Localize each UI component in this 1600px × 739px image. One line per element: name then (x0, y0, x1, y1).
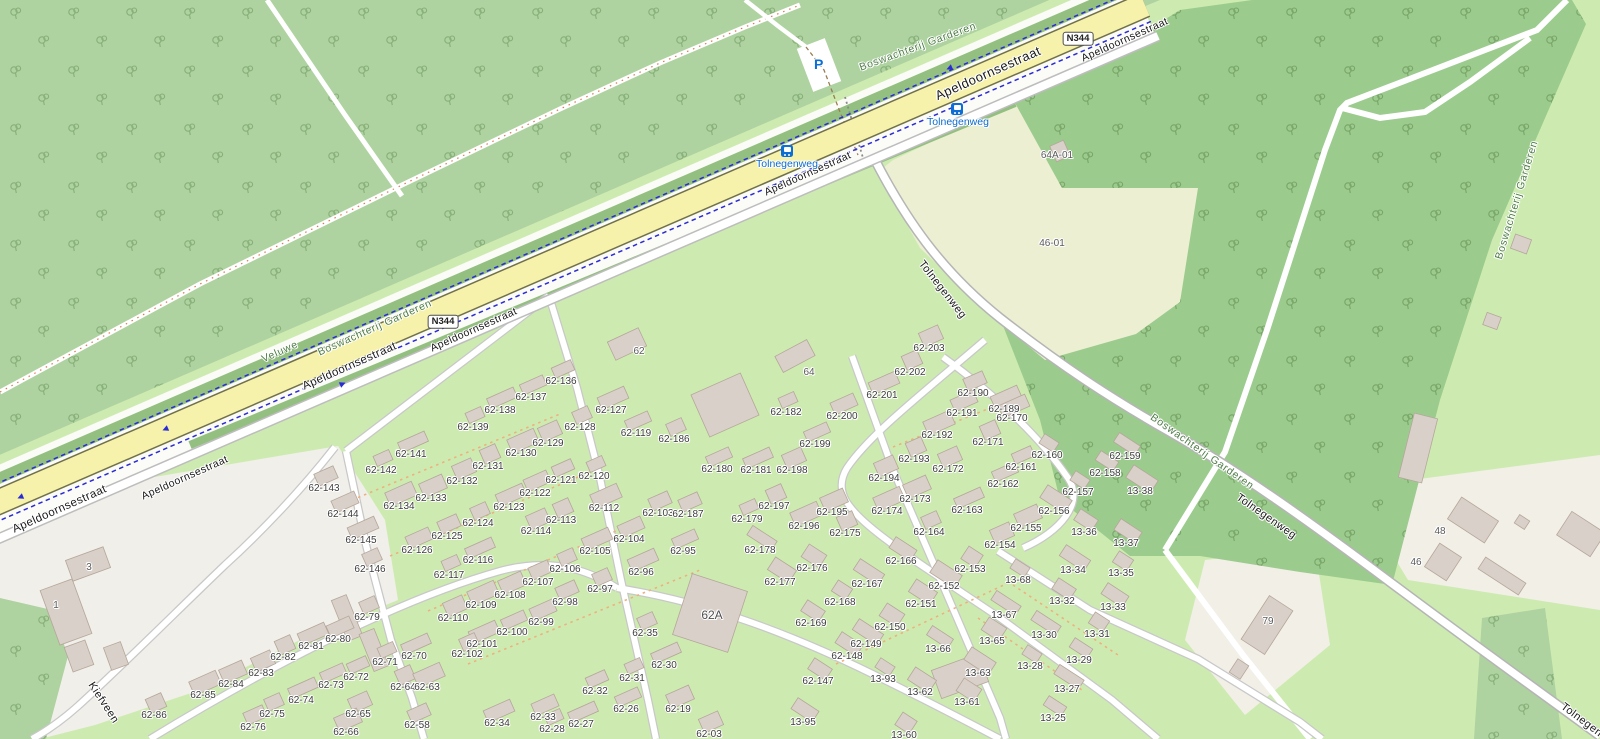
map-canvas[interactable]: 62-13662-13762-13862-13962-14162-14262-1… (0, 0, 1600, 739)
map-geometry (0, 0, 1600, 739)
